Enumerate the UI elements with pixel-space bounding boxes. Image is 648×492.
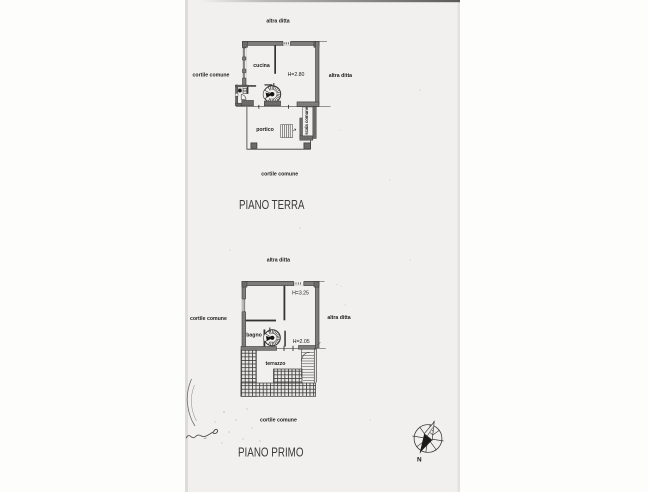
svg-text:H=3.25: H=3.25 [292,290,309,296]
svg-text:bagno: bagno [246,333,262,339]
svg-text:portico: portico [256,127,274,133]
svg-text:cortile comune: cortile comune [260,418,297,424]
svg-text:H=2.80: H=2.80 [288,72,305,78]
svg-text:terrazzo: terrazzo [266,361,286,367]
svg-text:scala comune: scala comune [304,106,309,134]
svg-text:altra ditta: altra ditta [266,19,289,25]
svg-text:cortile comune: cortile comune [190,316,227,322]
svg-text:altra ditta: altra ditta [329,73,352,79]
svg-text:cortile comune: cortile comune [261,172,298,178]
svg-text:H=2.05: H=2.05 [293,339,310,345]
svg-text:altra ditta: altra ditta [327,315,350,321]
svg-text:altra ditta: altra ditta [267,257,290,263]
svg-text:N: N [417,457,422,464]
svg-text:PIANO PRIMO: PIANO PRIMO [238,446,304,460]
svg-text:PIANO TERRA: PIANO TERRA [239,198,305,212]
svg-text:cortile comune: cortile comune [193,73,230,79]
svg-text:cucina: cucina [253,63,270,69]
